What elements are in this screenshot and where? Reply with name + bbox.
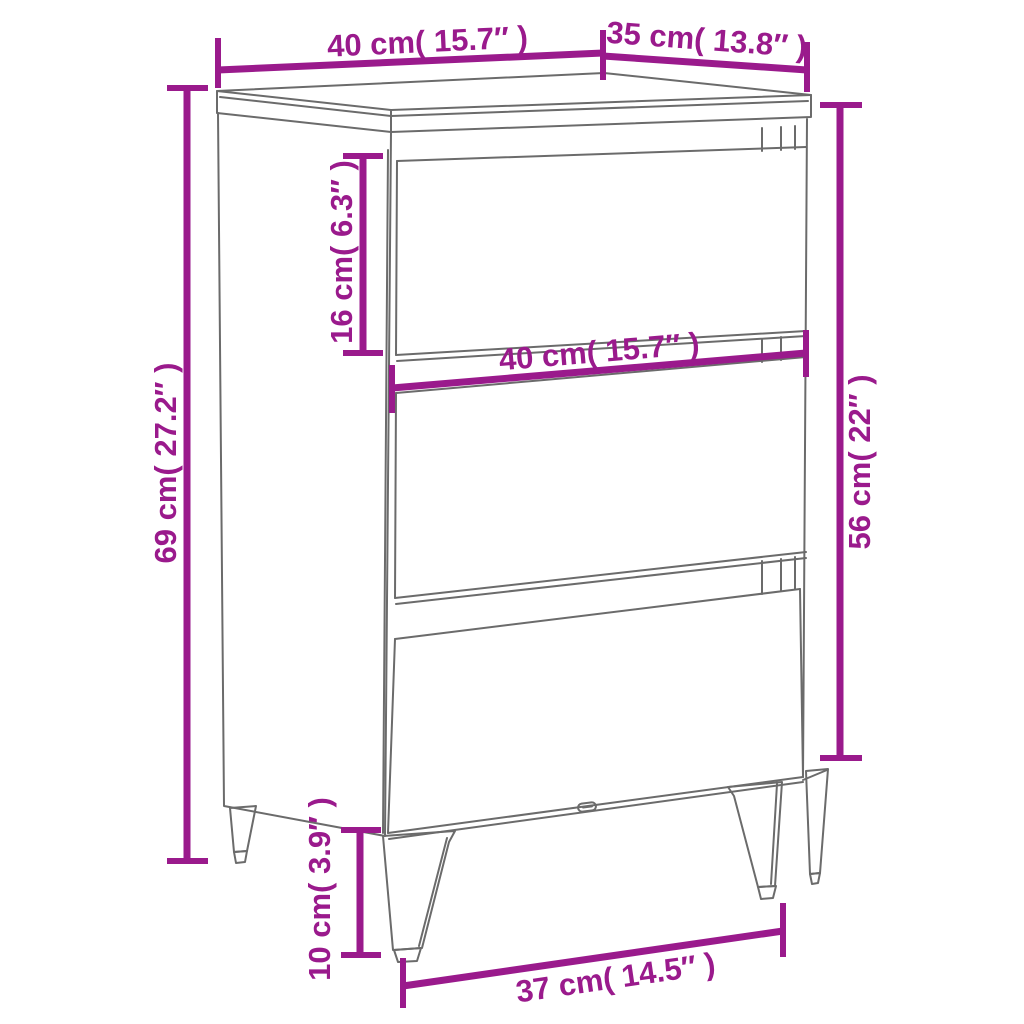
dim-label-leg-height: 10 cm( 3.9″ ) xyxy=(302,797,337,981)
dimension-lines xyxy=(167,30,862,1008)
gap2-lip xyxy=(396,558,806,604)
drawer2-left-edge xyxy=(395,393,396,598)
dim-label-overall-height: 69 cm( 27.2″ ) xyxy=(148,363,183,564)
dim-label-body-height: 56 cm( 22″ ) xyxy=(842,374,877,549)
leg-front-left-inner xyxy=(419,838,447,946)
drawer1-top-edge xyxy=(397,147,806,161)
dim-label-top-drawer-height: 16 cm( 6.3″ ) xyxy=(324,160,359,344)
leg-front-right-foot xyxy=(758,886,776,899)
leg-back-right-foot xyxy=(810,873,820,884)
leg-back-right xyxy=(806,769,828,874)
drawer2-bottom-edge xyxy=(395,552,806,598)
drawer1-left-edge xyxy=(396,161,397,355)
drawer3-left-edge xyxy=(388,639,395,833)
dimension-labels: 40 cm( 15.7″ ) 35 cm( 13.8″ ) 69 cm( 27.… xyxy=(148,15,877,1010)
diagram-canvas: 40 cm( 15.7″ ) 35 cm( 13.8″ ) 69 cm( 27.… xyxy=(0,0,1024,1024)
right-edge xyxy=(803,119,807,777)
leg-back-left-foot xyxy=(234,851,247,863)
leg-back-left xyxy=(230,806,256,852)
dimension-diagram: 40 cm( 15.7″ ) 35 cm( 13.8″ ) 69 cm( 27.… xyxy=(0,0,1024,1024)
leg-front-left-foot xyxy=(394,948,421,962)
drawer3-right-edge xyxy=(800,589,803,777)
